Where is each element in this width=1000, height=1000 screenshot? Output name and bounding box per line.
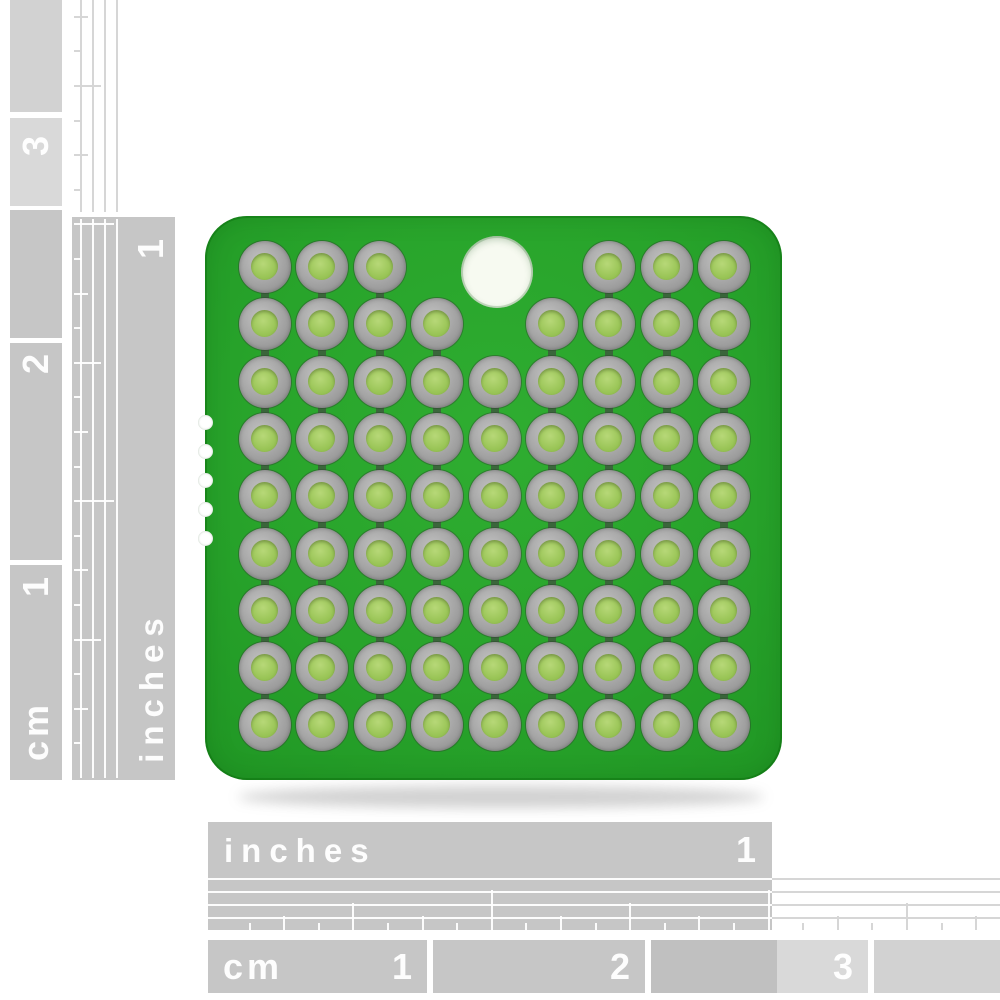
bottom-cm-block-1: cm 1	[208, 940, 427, 993]
left-cm-block-1	[10, 565, 62, 780]
pad-hole	[481, 425, 508, 452]
pad-hole	[710, 597, 737, 624]
ruler-tick	[352, 903, 354, 930]
ruler-tick	[74, 223, 114, 225]
product-photo: 3 2 1 cm 1 inches inches 1 cm 1	[0, 0, 1000, 1000]
pad-hole	[710, 711, 737, 738]
pad-hole	[710, 253, 737, 280]
ruler-tick	[74, 639, 101, 641]
ruler-line	[92, 219, 94, 778]
pad-hole	[481, 540, 508, 567]
ruler-tick	[906, 903, 908, 930]
solder-pad	[698, 642, 750, 694]
pad-hole	[251, 368, 278, 395]
solder-pad	[411, 413, 463, 465]
left-inches-bar	[72, 217, 175, 780]
pad-hole	[308, 540, 335, 567]
solder-pad	[526, 642, 578, 694]
solder-pad	[354, 642, 406, 694]
bottom-inches-mark-1-text: 1	[736, 832, 756, 870]
pad-hole	[251, 711, 278, 738]
pad-hole	[653, 425, 680, 452]
solder-pad	[354, 528, 406, 580]
pad-hole	[653, 711, 680, 738]
ruler-line	[92, 0, 94, 212]
solder-pad	[469, 356, 521, 408]
pad-hole	[538, 597, 565, 624]
ruler-tick	[941, 923, 943, 930]
ruler-tick	[318, 923, 320, 930]
ruler-tick	[871, 923, 873, 930]
solder-pad	[698, 241, 750, 293]
pad-hole	[366, 310, 393, 337]
solder-pad	[469, 585, 521, 637]
pad-hole	[308, 253, 335, 280]
solder-pad	[469, 528, 521, 580]
solder-pad	[526, 356, 578, 408]
ruler-line	[772, 891, 1000, 893]
pad-hole	[423, 310, 450, 337]
bottom-inches-unit-text: inches	[224, 832, 377, 870]
ruler-tick	[560, 916, 562, 930]
pad-hole	[538, 482, 565, 509]
ruler-tick	[74, 604, 81, 606]
bottom-inches-labels: inches 1	[208, 832, 772, 870]
solder-pad	[469, 699, 521, 751]
solder-pad	[698, 413, 750, 465]
ruler-tick	[74, 362, 101, 364]
solder-pad	[411, 585, 463, 637]
solder-pad	[583, 241, 635, 293]
pad-hole	[538, 425, 565, 452]
pad-hole	[308, 425, 335, 452]
edge-notch	[198, 415, 213, 430]
pad-hole	[481, 368, 508, 395]
solder-pad	[296, 585, 348, 637]
pad-hole	[653, 253, 680, 280]
ruler-tick	[733, 923, 735, 930]
ruler-tick	[74, 396, 81, 398]
pad-hole	[538, 310, 565, 337]
ruler-line	[772, 878, 1000, 880]
solder-pad	[239, 642, 291, 694]
pad-hole	[308, 368, 335, 395]
solder-pad	[698, 356, 750, 408]
ruler-tick	[74, 708, 88, 710]
pad-hole	[366, 597, 393, 624]
ruler-tick	[74, 16, 88, 18]
left-cm-block-3	[10, 118, 62, 206]
ruler-tick	[74, 258, 81, 260]
solder-pad	[354, 298, 406, 350]
solder-pad	[296, 413, 348, 465]
ruler-line	[116, 219, 118, 778]
pcb-drop-shadow	[238, 786, 764, 808]
pad-hole	[538, 654, 565, 681]
pad-hole	[538, 368, 565, 395]
pad-hole	[481, 711, 508, 738]
ruler-tick	[74, 569, 88, 571]
pad-hole	[366, 711, 393, 738]
pad-hole	[308, 310, 335, 337]
pad-hole	[366, 368, 393, 395]
ruler-tick	[664, 923, 666, 930]
pad-hole	[423, 711, 450, 738]
pad-hole	[251, 253, 278, 280]
left-cm-block-3b	[10, 210, 62, 338]
pad-hole	[423, 482, 450, 509]
solder-pad	[239, 585, 291, 637]
pad-hole	[423, 597, 450, 624]
bottom-cm-unit-text: cm	[223, 949, 283, 985]
pad-hole	[653, 654, 680, 681]
ruler-tick	[595, 923, 597, 930]
solder-pad	[583, 356, 635, 408]
ruler-tick	[74, 673, 81, 675]
pad-hole	[595, 425, 622, 452]
bottom-cm-mark-3-text: 3	[833, 949, 853, 985]
pad-hole	[251, 425, 278, 452]
solder-pad	[698, 528, 750, 580]
solder-pad	[411, 356, 463, 408]
ruler-tick	[74, 85, 101, 87]
ruler-tick	[74, 500, 114, 502]
pad-hole	[423, 368, 450, 395]
pad-hole	[366, 482, 393, 509]
pad-hole	[538, 711, 565, 738]
ruler-tick	[629, 903, 631, 930]
solder-pad	[354, 470, 406, 522]
bottom-cm-block-3b: 3	[777, 940, 868, 993]
pad-hole	[710, 368, 737, 395]
solder-pad	[354, 356, 406, 408]
bottom-cm-block-3a	[651, 940, 777, 993]
pad-hole	[251, 482, 278, 509]
ruler-tick	[74, 327, 81, 329]
solder-pad	[526, 585, 578, 637]
solder-pad	[698, 470, 750, 522]
ruler-line	[772, 917, 1000, 919]
solder-pad	[583, 585, 635, 637]
pad-hole	[595, 654, 622, 681]
left-cm-block-2	[10, 343, 62, 560]
solder-pad	[526, 699, 578, 751]
ruler-tick	[456, 923, 458, 930]
pad-hole	[423, 540, 450, 567]
pad-hole	[653, 540, 680, 567]
ruler-tick	[525, 923, 527, 930]
pad-hole	[481, 482, 508, 509]
solder-pad	[354, 413, 406, 465]
pad-hole	[595, 310, 622, 337]
mounting-hole	[461, 236, 533, 308]
solder-pad	[641, 528, 693, 580]
solder-pad	[641, 699, 693, 751]
ruler-tick	[422, 916, 424, 930]
pad-hole	[251, 597, 278, 624]
pad-hole	[366, 425, 393, 452]
pad-hole	[595, 597, 622, 624]
ruler-tick	[698, 916, 700, 930]
ruler-tick	[491, 890, 493, 930]
pad-hole	[710, 654, 737, 681]
edge-notch	[198, 444, 213, 459]
ruler-line	[104, 219, 106, 778]
bottom-cm-mark-2-text: 2	[610, 949, 630, 985]
ruler-tick	[768, 890, 770, 930]
left-cm-block-4	[10, 0, 62, 112]
ruler-tick	[74, 742, 81, 744]
solder-pad	[239, 241, 291, 293]
pad-hole	[251, 540, 278, 567]
solder-pad	[239, 298, 291, 350]
solder-pad	[296, 528, 348, 580]
pad-hole	[595, 368, 622, 395]
pad-hole	[653, 482, 680, 509]
solder-pad	[354, 699, 406, 751]
pad-hole	[710, 425, 737, 452]
pad-hole	[595, 540, 622, 567]
pad-hole	[423, 425, 450, 452]
pad-hole	[308, 482, 335, 509]
solder-pad	[354, 585, 406, 637]
solder-pad	[239, 413, 291, 465]
pad-hole	[595, 711, 622, 738]
pad-hole	[710, 540, 737, 567]
ruler-tick	[975, 916, 977, 930]
pad-hole	[366, 654, 393, 681]
solder-pad	[526, 298, 578, 350]
solder-pad	[641, 642, 693, 694]
edge-notch	[198, 502, 213, 517]
solder-pad	[296, 356, 348, 408]
ruler-tick	[802, 923, 804, 930]
solder-pad	[641, 241, 693, 293]
solder-pad	[239, 528, 291, 580]
solder-pad	[469, 470, 521, 522]
solder-pad	[641, 356, 693, 408]
solder-pad	[411, 642, 463, 694]
pad-hole	[251, 310, 278, 337]
ruler-line	[80, 0, 82, 212]
bottom-cm-block-4	[874, 940, 1000, 993]
ruler-line	[208, 878, 772, 880]
solder-pad	[239, 470, 291, 522]
solder-pad	[526, 528, 578, 580]
solder-pad	[641, 470, 693, 522]
solder-pad	[641, 413, 693, 465]
solder-pad	[239, 699, 291, 751]
solder-pad	[354, 241, 406, 293]
solder-pad	[641, 585, 693, 637]
solder-pad	[411, 528, 463, 580]
solder-pad	[239, 356, 291, 408]
ruler-tick	[837, 916, 839, 930]
ruler-tick	[74, 50, 81, 52]
pad-hole	[710, 310, 737, 337]
pad-hole	[653, 597, 680, 624]
solder-pad	[469, 642, 521, 694]
solder-pad	[583, 528, 635, 580]
pad-hole	[481, 654, 508, 681]
pad-hole	[308, 654, 335, 681]
pad-hole	[251, 654, 278, 681]
ruler-line	[116, 0, 118, 212]
solder-pad	[526, 470, 578, 522]
solder-pad	[296, 241, 348, 293]
pad-hole	[653, 368, 680, 395]
pad-hole	[481, 597, 508, 624]
solder-pad	[411, 470, 463, 522]
edge-notch	[198, 531, 213, 546]
bottom-cm-mark-1-text: 1	[392, 949, 412, 985]
pad-hole	[595, 253, 622, 280]
bottom-cm-block-2-labels: 2	[433, 940, 645, 993]
solder-pad	[583, 413, 635, 465]
ruler-tick	[74, 466, 81, 468]
ruler-tick	[74, 189, 81, 191]
bottom-cm-block-3-labels: 3	[777, 940, 868, 993]
ruler-tick	[74, 431, 88, 433]
pad-hole	[308, 711, 335, 738]
ruler-tick	[387, 923, 389, 930]
pad-hole	[538, 540, 565, 567]
ruler-tick	[74, 120, 81, 122]
bottom-cm-block-1-labels: cm 1	[208, 940, 427, 993]
ruler-tick	[74, 154, 88, 156]
pad-hole	[653, 310, 680, 337]
ruler-tick	[74, 293, 88, 295]
edge-notch	[198, 473, 213, 488]
pad-hole	[366, 540, 393, 567]
ruler-line	[104, 0, 106, 212]
ruler-line	[80, 219, 82, 778]
pad-hole	[710, 482, 737, 509]
ruler-tick	[74, 535, 81, 537]
bottom-cm-block-2: 2	[433, 940, 645, 993]
pad-hole	[366, 253, 393, 280]
ruler-tick	[249, 923, 251, 930]
pad-hole	[423, 654, 450, 681]
solder-pad	[641, 298, 693, 350]
pad-hole	[308, 597, 335, 624]
solder-pad	[698, 585, 750, 637]
solder-pad	[526, 413, 578, 465]
ruler-line	[772, 904, 1000, 906]
solder-pad	[469, 413, 521, 465]
pad-hole	[595, 482, 622, 509]
ruler-tick	[283, 916, 285, 930]
